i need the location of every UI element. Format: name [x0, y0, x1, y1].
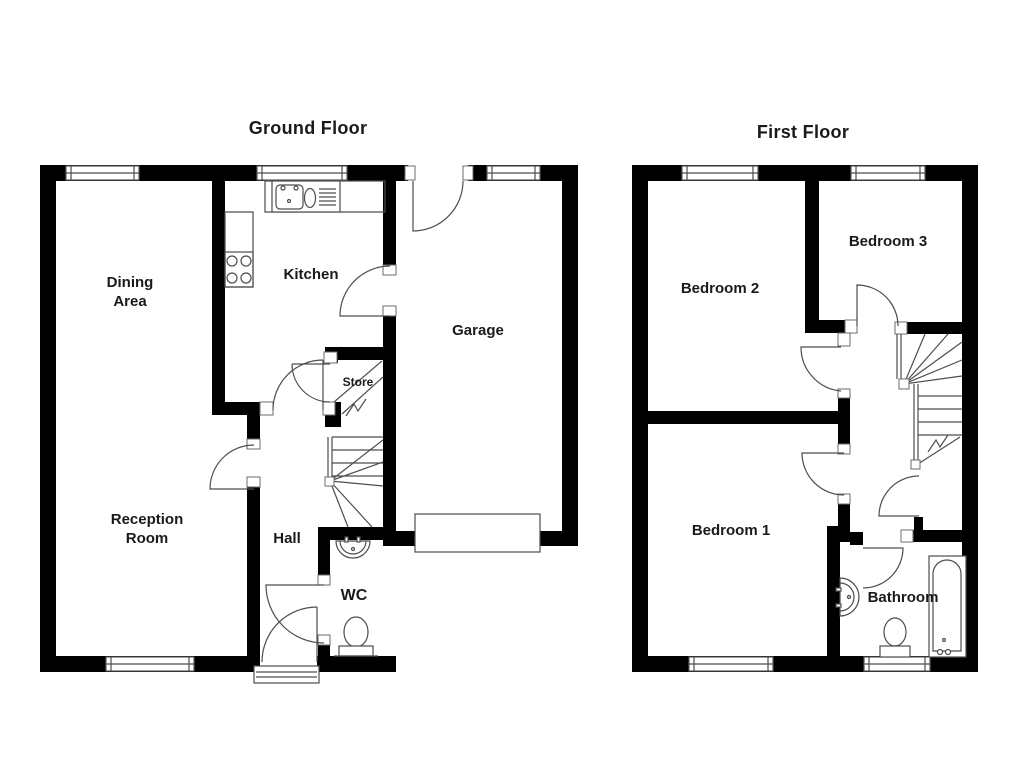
floorplan-canvas: Ground Floor: [0, 0, 1024, 768]
bedroom1-door: [802, 453, 844, 495]
window-bedroom3: [851, 166, 925, 180]
window-reception: [106, 657, 194, 671]
room-label-bedroom2: Bedroom 2: [681, 280, 759, 297]
front-door-threshold: [254, 666, 319, 683]
window-bedroom1: [689, 657, 773, 671]
window-dining: [66, 166, 139, 180]
ground-floor-walls: [40, 165, 578, 672]
bathtub-icon: [929, 556, 966, 657]
window-garage: [487, 166, 540, 180]
window-kitchen: [257, 166, 347, 180]
room-label-bathroom: Bathroom: [868, 589, 939, 606]
first-floor-plan: First Floor: [632, 122, 978, 672]
room-label-reception-1: Reception: [111, 511, 184, 528]
room-label-bedroom1: Bedroom 1: [692, 522, 770, 539]
ground-floor-door-jambs: [247, 166, 473, 645]
room-label-bedroom3: Bedroom 3: [849, 233, 927, 250]
ground-floor-plan: Ground Floor: [40, 118, 578, 683]
first-floor-title: First Floor: [757, 122, 849, 142]
garage-door: [415, 514, 540, 552]
kitchen-hob-icon: [225, 252, 253, 287]
bathroom-toilet-icon: [880, 618, 910, 657]
window-bedroom2: [682, 166, 758, 180]
room-label-reception-2: Room: [126, 530, 169, 547]
room-label-hall: Hall: [273, 530, 301, 547]
first-staircase: [897, 334, 962, 469]
room-label-wc: WC: [341, 587, 368, 604]
garage-side-door: [413, 181, 463, 231]
wc-door: [266, 585, 324, 643]
kitchen-sink-icon: [272, 181, 340, 212]
front-door: [262, 607, 317, 662]
bathroom-basin-icon: [836, 578, 859, 616]
room-label-garage: Garage: [452, 322, 504, 339]
bedroom3-door: [857, 285, 898, 326]
window-bathroom: [864, 657, 930, 671]
wc-toilet-icon: [334, 617, 378, 656]
room-label-kitchen: Kitchen: [283, 266, 338, 283]
store-door: [292, 364, 330, 402]
bathroom-door: [863, 548, 903, 588]
landing-cupboard-door: [879, 476, 919, 516]
ground-floor-title: Ground Floor: [249, 118, 368, 138]
wc-basin-icon: [336, 537, 370, 558]
floorplan-svg: Ground Floor: [0, 0, 1024, 768]
room-label-dining-1: Dining: [107, 274, 154, 291]
room-label-dining-2: Area: [113, 293, 147, 310]
bedroom2-door: [801, 347, 841, 391]
room-label-store: Store: [343, 375, 374, 389]
